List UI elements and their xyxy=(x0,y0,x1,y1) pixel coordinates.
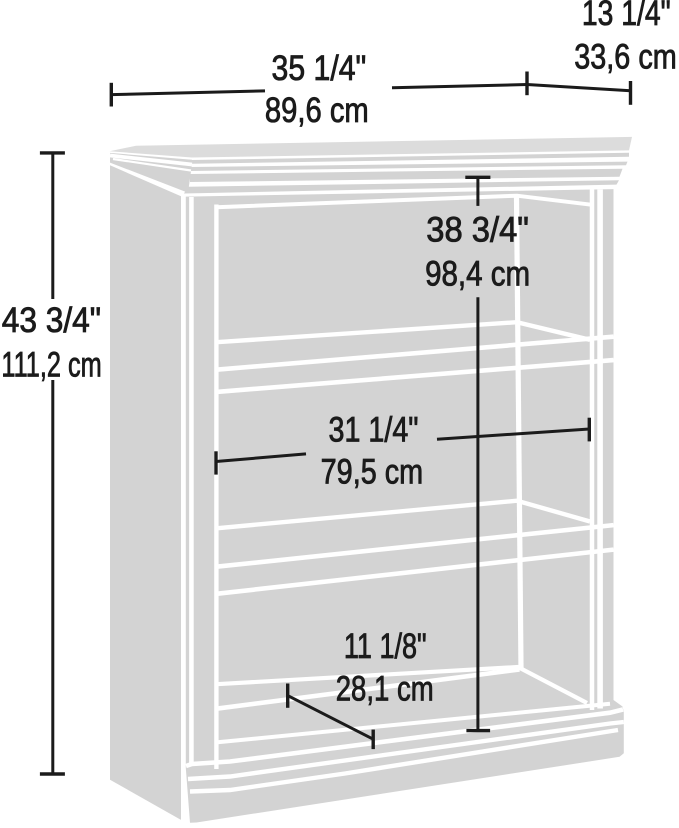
svg-text:79,5 cm: 79,5 cm xyxy=(321,452,423,491)
svg-text:28,1 cm: 28,1 cm xyxy=(336,668,434,708)
svg-text:31 1/4": 31 1/4" xyxy=(329,410,419,449)
svg-text:98,4 cm: 98,4 cm xyxy=(425,254,530,293)
svg-text:38 3/4": 38 3/4" xyxy=(426,210,529,249)
svg-text:13 1/4": 13 1/4" xyxy=(582,0,671,33)
svg-text:35 1/4": 35 1/4" xyxy=(272,48,367,88)
svg-text:111,2 cm: 111,2 cm xyxy=(1,345,101,384)
svg-text:11 1/8": 11 1/8" xyxy=(344,627,427,666)
svg-text:89,6 cm: 89,6 cm xyxy=(265,91,369,130)
svg-text:33,6 cm: 33,6 cm xyxy=(574,37,676,76)
svg-text:43 3/4": 43 3/4" xyxy=(2,302,101,341)
